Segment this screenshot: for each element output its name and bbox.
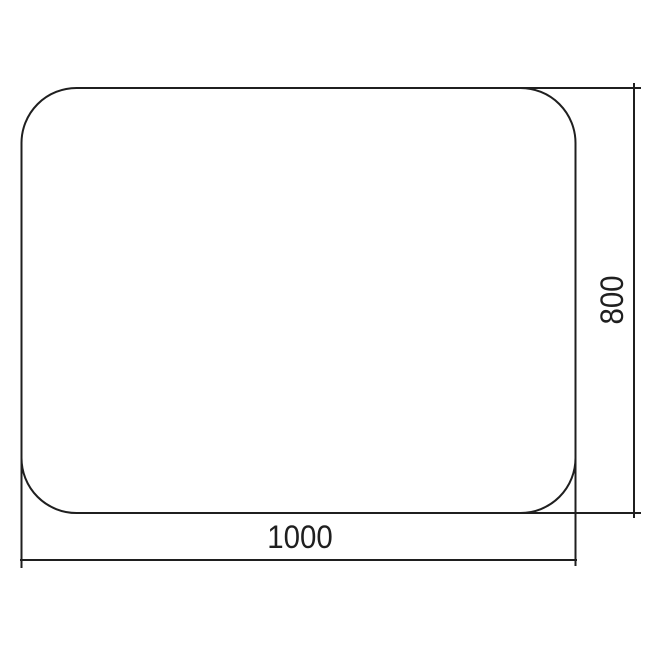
height-dimension-label: 800 [596, 275, 628, 324]
technical-drawing: 1000 800 [0, 0, 650, 650]
width-dimension-label: 1000 [267, 521, 332, 553]
drawing-lines [20, 83, 641, 568]
rounded-rectangle-outline [22, 88, 576, 513]
